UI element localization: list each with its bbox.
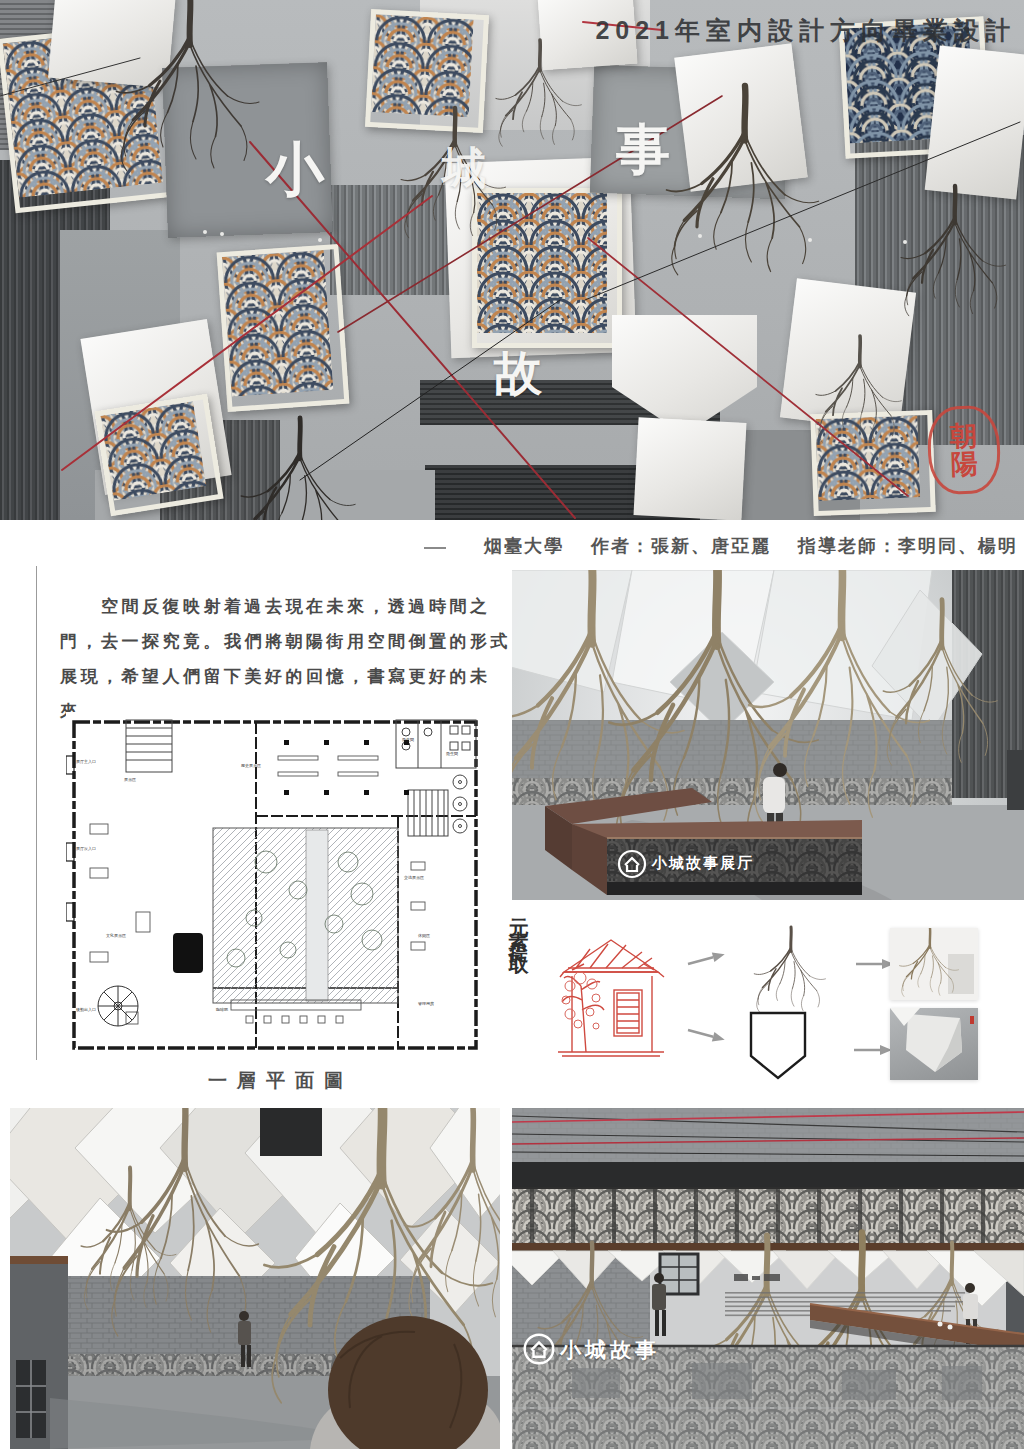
plan-label: 衛生間 [446, 752, 458, 756]
red-house-sketch [556, 934, 668, 1066]
interior-right-scene [512, 1108, 1024, 1449]
extract-arrow-icon [686, 948, 730, 972]
plan-label: 衛生間 [402, 738, 414, 742]
reception-scene [512, 570, 1024, 900]
plan-label: 展示區 [124, 778, 136, 782]
wall-logo-icon [522, 1332, 556, 1366]
poster-title: 2021年室内設計方向畢業設計 [595, 14, 1016, 47]
hero-char-cheng: 城 [442, 146, 486, 190]
hero-char-gu: 故 [494, 350, 542, 398]
seal-char-bottom: 陽 [951, 450, 979, 479]
intro-paragraph: 空間反復映射着過去現在未來，透過時間之門，去一探究竟。我們將朝陽街用空間倒置的形… [60, 590, 512, 729]
plan-label: 展厅次入口 [76, 847, 96, 851]
desk-logo-icon [616, 848, 648, 880]
pentagon-shape [748, 1010, 810, 1082]
tree-render-thumb [890, 928, 978, 1000]
interior-left-scene [10, 1108, 500, 1449]
hero-trees-and-lines [0, 0, 1024, 520]
interior-render-right: 小城故事 [512, 1108, 1024, 1449]
hero-char-shi: 事 [616, 122, 670, 176]
desk-sign: 小城故事展厅 [652, 854, 754, 873]
wall-logo-text: 小城故事 [560, 1336, 660, 1364]
floor-plan-drawing [66, 712, 480, 1060]
graduation-design-poster: 小 城 事 故 2021年室内設計方向畢業設計 朝 陽 烟臺大學 作者：張新、唐… [0, 0, 1024, 1449]
plan-label: 展厅主入口 [76, 760, 96, 764]
seal-char-top: 朝 [950, 421, 978, 450]
chaoyang-seal: 朝 陽 [926, 405, 1001, 495]
floor-plan: 歷史展示區 展示區 文化展示區 交流展示區 休閑區 咖啡吧 管理用房 衛生間 衛… [66, 712, 480, 1060]
hero-render: 小 城 事 故 2021年室内設計方向畢業設計 朝 陽 [0, 0, 1024, 520]
reception-render: 小城故事展厅 [512, 570, 1024, 900]
element-extraction-label: 元素提取 [506, 902, 533, 950]
interior-render-left [10, 1108, 500, 1449]
plan-label: 歷史展示區 [241, 764, 261, 768]
plan-label: 後勤出入口 [76, 1008, 96, 1012]
plan-label: 咖啡吧 [216, 1008, 228, 1012]
extract-arrow-icon [686, 1022, 730, 1046]
plan-label: 文化展示區 [106, 934, 126, 938]
plan-label: 管理用房 [418, 1002, 434, 1006]
plan-label: 休閑區 [418, 934, 430, 938]
hero-char-xiao: 小 [266, 140, 324, 198]
left-rule [36, 566, 37, 1060]
plan-caption: 一層平面圖 [208, 1068, 353, 1094]
box-render-thumb [890, 1008, 978, 1080]
credits-dash [424, 547, 446, 549]
plan-label: 交流展示區 [404, 876, 424, 880]
inverted-tree-sketch [735, 925, 845, 1017]
credits-line: 烟臺大學 作者：張新、唐亞麗 指導老師：李明同、楊明 [484, 534, 1018, 558]
